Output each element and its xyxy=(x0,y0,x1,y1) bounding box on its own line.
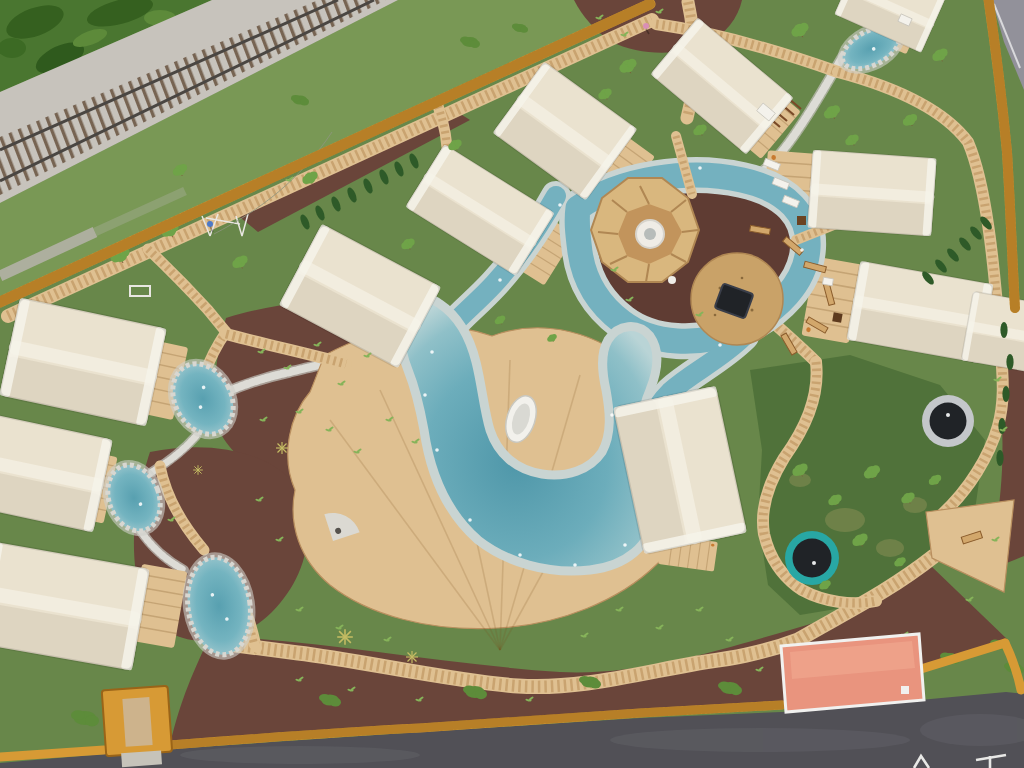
service-building-salmon-roof xyxy=(781,634,924,712)
in-ground-trampoline-gray xyxy=(922,395,974,447)
conifer xyxy=(998,418,1005,434)
safari-tent xyxy=(807,150,936,236)
conifer xyxy=(996,450,1003,466)
deck-chair xyxy=(797,216,806,225)
in-ground-trampoline-teal xyxy=(785,531,839,585)
gate-threshold xyxy=(121,750,162,767)
gate-door xyxy=(122,697,152,747)
conifer xyxy=(1006,354,1013,370)
person-walking xyxy=(643,23,649,29)
conifer xyxy=(1002,386,1009,402)
deck-box xyxy=(832,312,842,322)
conifer xyxy=(1000,322,1007,338)
aerial-photo-glamping-resort: Aerial drone view of a glamping resort w… xyxy=(0,0,1024,768)
play-tower-octagon xyxy=(591,178,699,282)
white-bag xyxy=(668,276,676,284)
roof-hatch xyxy=(901,686,909,694)
person-on-lawn xyxy=(207,221,213,227)
scene-canvas: Aerial drone view of a glamping resort w… xyxy=(0,0,1024,768)
